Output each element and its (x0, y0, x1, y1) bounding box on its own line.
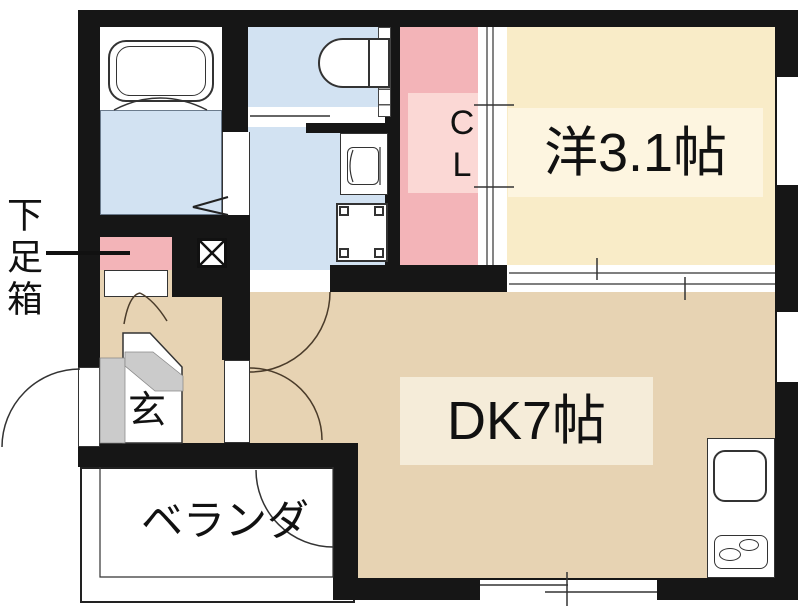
washroom-left-floor (100, 110, 222, 215)
wall-top (78, 10, 798, 27)
shoe-box-counter (104, 270, 168, 297)
closet-sliding-door-track (478, 27, 507, 265)
kitchen-sink (713, 450, 767, 502)
washer-pan-corner-tr (374, 206, 384, 216)
wall-hall-bottom (78, 443, 358, 467)
veranda-label-text: ベランダ (141, 500, 309, 542)
toilet-tank (368, 38, 390, 88)
wall-toilet-stub (306, 123, 388, 133)
dk-label-text: DK7帖 (447, 394, 606, 448)
shoe-box-cabinet (100, 237, 172, 270)
wall-bath-toilet-divider (222, 27, 248, 132)
toilet-bowl (318, 38, 370, 88)
entrance-door-leaf (78, 367, 100, 447)
hall-washroom-opening (250, 270, 330, 292)
wall-below-closet (330, 265, 507, 292)
entrance-door-arc (2, 369, 80, 447)
wall-below-washroom (100, 215, 250, 237)
western-room-label: 洋3.1帖 (508, 108, 763, 197)
washbasin-bowl (347, 147, 379, 185)
stove-burner-left (719, 548, 741, 561)
stove-burner-right (739, 539, 759, 551)
window-western-room (777, 77, 798, 185)
closet-label: CL (445, 104, 479, 188)
shoe-box-label: 下足箱 (4, 196, 40, 322)
pipe-space-box (197, 238, 227, 268)
western-room-label-text: 洋3.1帖 (544, 126, 727, 180)
wall-hall-dk-stub (222, 297, 250, 360)
hall-dk-door (224, 360, 250, 443)
window-dk-bottom (480, 580, 657, 600)
window-dk (777, 312, 798, 382)
washer-pan-corner-br (374, 248, 384, 258)
wall-veranda-right (333, 467, 358, 600)
washer-pan-corner-tl (339, 206, 349, 216)
dk-label: DK7帖 (400, 377, 653, 465)
veranda-label: ベランダ (125, 496, 325, 546)
entrance-label: 玄 (128, 392, 166, 430)
bathtub-inner (116, 46, 206, 96)
washer-pan-corner-bl (339, 248, 349, 258)
floor-plan: 下足箱 玄 CL 洋3.1帖 DK7帖 ベランダ (0, 0, 800, 607)
washroom-passage-door (222, 132, 250, 215)
western-dk-sliding-door-track (507, 265, 775, 292)
